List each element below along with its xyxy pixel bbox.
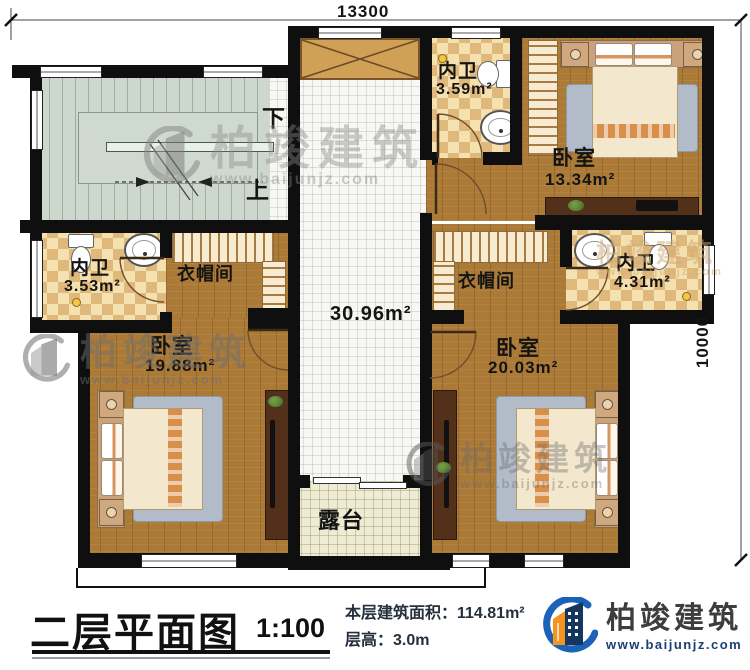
nightstand [595,499,620,526]
terrace-name: 露台 [318,503,364,535]
closet-left-wardrobe-side [262,261,286,315]
wall [248,308,288,330]
window [703,245,715,295]
pillow [595,43,633,66]
wall [403,475,432,488]
company-url: www.baijunjz.com [606,638,742,651]
closet-right-wardrobe-side [433,261,455,313]
stair-railing [106,142,274,152]
bath-left-name: 内卫 [70,253,110,280]
window [318,27,382,39]
company-name: 柏竣建筑 [606,604,742,634]
bed [123,408,203,510]
watermark-logo-icon [18,334,70,386]
sliding-door-panel [313,477,361,484]
floor-area-info: 本层建筑面积：114.81m² [345,599,525,623]
closet-left-name: 衣帽间 [177,260,234,286]
drawing-scale: 1:100 [256,613,325,644]
pillow [101,460,123,496]
sink [124,233,164,267]
laptop [636,200,678,211]
tv [270,420,275,508]
plant [436,462,451,473]
bed [592,66,678,158]
nightstand-knob [692,49,703,60]
bed-blanket-band [593,124,675,138]
pillow [101,423,123,459]
floor-area-value: 114.81m² [457,605,525,622]
dimension-top: 13300 [337,2,389,22]
bath-top-name: 内卫 [438,56,478,83]
company-logo: 柏竣建筑 www.baijunjz.com [538,597,742,657]
bed [516,408,596,510]
plant [268,396,283,407]
roof-outline [76,568,78,588]
bedroom-top-right-name: 卧室 [552,142,596,172]
bedroom-bottom-right-area: 20.03m² [488,358,558,378]
wall [560,230,572,267]
floor-height-label: 层高： [345,632,393,649]
nightstand-knob [602,399,613,410]
floor-height-info: 层高：3.0m [345,626,429,650]
floor-area-label: 本层建筑面积： [345,605,457,622]
bath-top-area: 3.59m² [436,81,493,99]
wall [420,213,432,570]
wall [160,233,172,258]
wall [420,26,432,160]
pillow [596,460,618,496]
nightstand [561,42,589,67]
wall [483,152,510,165]
sink [574,233,615,268]
wall [288,26,300,570]
window [40,66,102,78]
nightstand [99,391,124,418]
roof-outline [484,568,486,588]
pillow [596,423,618,459]
nightstand [99,499,124,526]
bath-right-area: 4.31m² [614,274,671,292]
bath-right-name: 内卫 [616,248,656,275]
roof-outline [76,586,486,588]
window [203,66,263,78]
window [524,554,564,568]
wall [78,333,90,568]
pillow [634,43,672,66]
sliding-door-panel [359,482,407,489]
hall-area-label: 30.96m² [330,303,412,326]
bedroom-bottom-left-area: 19.88m² [145,356,215,376]
title-underline [32,650,330,654]
stair-down-label: 下 [262,99,286,133]
window [141,554,237,568]
window [452,554,490,568]
nightstand-knob [106,399,117,410]
tv-cabinet [265,390,289,540]
bed-blanket-band [535,409,549,507]
wall [560,310,714,324]
wall [288,475,310,488]
window [31,240,43,318]
nightstand [595,391,620,418]
dimension-right: 10000 [693,307,713,377]
stair-up-label: 上 [246,171,270,205]
bedroom-top-right-area: 13.34m² [545,170,615,190]
floor-plan-page: 13300 10000 下 上 30.96m² 内卫 3.59m² 卧室 13.… [0,0,750,670]
bed-blanket-band [168,409,182,507]
hall-cabinet [300,38,420,80]
wall [618,324,630,568]
nightstand-knob [106,507,117,518]
company-logo-icon [538,597,598,657]
hall-floor [294,32,426,481]
wall [20,220,288,233]
closet-right-wardrobe [433,231,548,263]
plant [568,200,584,211]
wall [432,310,464,324]
floor-drain [682,292,691,301]
wall [432,152,438,165]
nightstand-knob [570,49,581,60]
wall [288,556,450,570]
window [451,27,501,39]
floor-height-value: 3.0m [393,632,429,649]
closet-left-wardrobe [172,231,274,263]
wall [510,38,522,165]
floor-drain [72,298,81,307]
nightstand-knob [602,507,613,518]
bath-left-area: 3.53m² [64,278,121,296]
wall [535,215,714,230]
closet-right-name: 衣帽间 [458,267,515,293]
window [31,90,43,150]
title-underline-thin [32,657,330,659]
bedroom-top-right-wardrobe [528,40,558,156]
